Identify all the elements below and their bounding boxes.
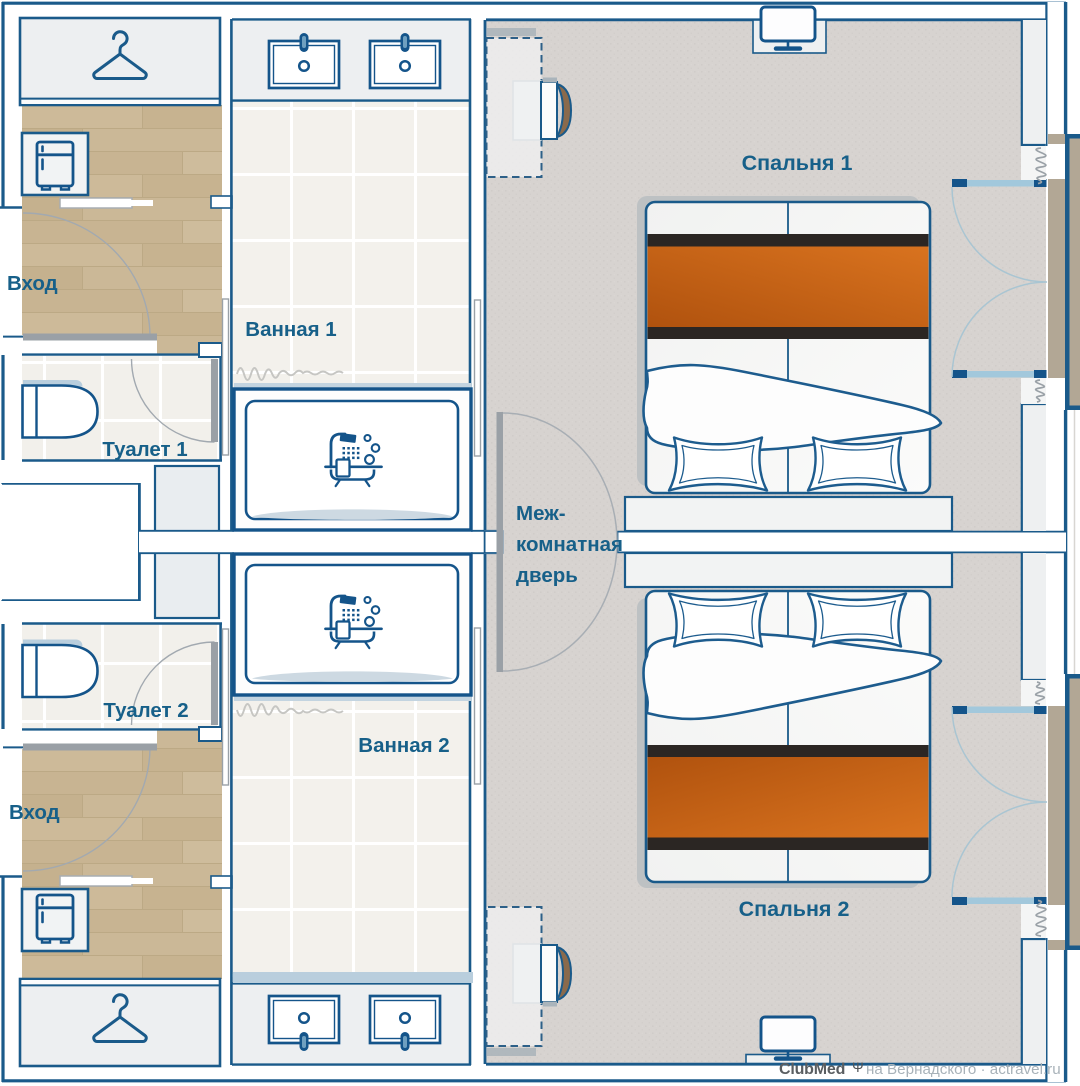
- svg-text:Туалет 2: Туалет 2: [103, 699, 188, 722]
- svg-text:Вход: Вход: [9, 801, 60, 824]
- svg-text:Ψ: Ψ: [852, 1059, 864, 1075]
- svg-text:Ванная 1: Ванная 1: [245, 318, 336, 341]
- svg-text:Ванная 2: Ванная 2: [358, 734, 449, 757]
- svg-text:на Вернадского · actravel.ru: на Вернадского · actravel.ru: [866, 1061, 1061, 1078]
- svg-text:комнатная: комнатная: [516, 533, 623, 556]
- svg-text:Спальня 1: Спальня 1: [742, 151, 853, 175]
- svg-text:ClubMed: ClubMed: [779, 1061, 845, 1078]
- svg-text:Меж-: Меж-: [516, 502, 566, 525]
- svg-text:дверь: дверь: [516, 564, 578, 587]
- svg-text:Спальня 2: Спальня 2: [739, 897, 850, 921]
- svg-text:Туалет 1: Туалет 1: [102, 438, 187, 461]
- svg-text:Вход: Вход: [7, 272, 58, 295]
